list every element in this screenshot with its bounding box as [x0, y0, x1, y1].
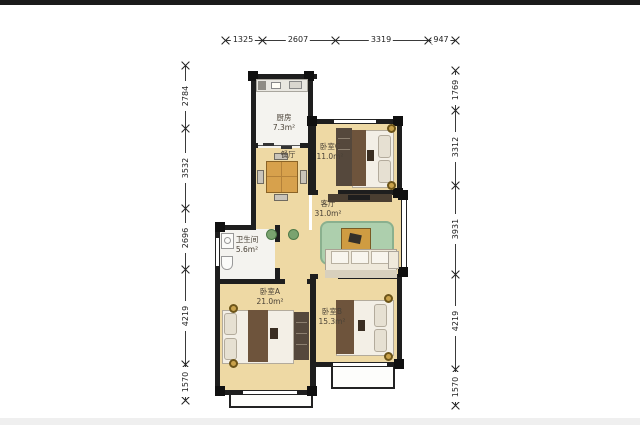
wall-segment [251, 74, 256, 230]
dimension-label: 3532 [181, 153, 191, 183]
stove-icon [289, 81, 302, 89]
dimension-tick [180, 264, 191, 275]
column [215, 386, 225, 396]
dimension-tick [180, 60, 191, 71]
bed-blanket [248, 310, 268, 362]
dimension-label: 947 [431, 35, 450, 44]
dimension-label: 2696 [181, 223, 191, 253]
dining-table-line [267, 176, 297, 177]
bedside-lamp-icon [384, 294, 393, 303]
dimension-tick [257, 35, 268, 46]
bed-accessory [358, 320, 365, 331]
sofa-backrest [325, 270, 397, 278]
dining-table [266, 161, 298, 193]
room-area: 5.6m² [224, 245, 270, 255]
room-name: 卧室B [309, 307, 355, 317]
wall-segment [397, 119, 402, 195]
room-name: 卫生间 [224, 235, 270, 245]
bay-window-bedroom-a [229, 393, 313, 408]
wardrobe [294, 312, 309, 360]
dimension-label: 1769 [451, 75, 461, 105]
dimension-label: 2784 [181, 81, 191, 111]
pillow [378, 160, 391, 183]
window-living-room [401, 199, 407, 269]
column [215, 222, 225, 232]
dimension-label: 1570 [451, 372, 461, 402]
dimension-tick [450, 180, 461, 191]
bed-blanket [352, 130, 366, 186]
room-label-bedroom-a: 卧室A 21.0m² [247, 287, 293, 307]
door-opening-bedroom-a [285, 279, 307, 284]
pillow [374, 329, 387, 352]
bed-accessory [367, 150, 374, 161]
letterbox-bottom-bar [0, 418, 640, 425]
dimension-tick [180, 203, 191, 214]
window-bedroom-b [333, 362, 387, 367]
dimension-label: 1570 [181, 367, 191, 397]
dimension-label: 3931 [451, 214, 461, 244]
window-bedroom-a [243, 390, 297, 395]
dimension-label: 3319 [369, 35, 393, 44]
room-area: 15.3m² [309, 317, 355, 327]
chair [274, 194, 288, 201]
dimension-tick [180, 123, 191, 134]
room-area: 11.0m² [307, 152, 353, 162]
fridge-icon [258, 81, 266, 90]
window-bedroom-c [334, 119, 376, 124]
dimension-tick [330, 35, 341, 46]
tv-icon [348, 195, 370, 200]
door-opening-bathroom [275, 242, 280, 268]
sofa-cushion [331, 251, 349, 264]
bay-window-bedroom-b [331, 365, 395, 389]
room-name: 厨房 [261, 113, 307, 123]
room-label-bedroom-b: 卧室B 15.3m² [309, 307, 355, 327]
bedside-lamp-icon [384, 352, 393, 361]
room-label-living: 客厅 31.0m² [305, 199, 351, 219]
room-name: 卧室A [247, 287, 293, 297]
room-label-bedroom-c: 卧室C 11.0m² [307, 142, 353, 162]
floorplan-image: 1325 2607 3319 947 2784 3532 2696 4219 1… [0, 0, 640, 425]
room-name: 餐厅 [265, 150, 311, 160]
column [307, 386, 317, 396]
dimension-label: 2607 [286, 35, 310, 44]
dimension-tick [220, 35, 231, 46]
dimension-label: 3312 [451, 132, 461, 162]
dimension-tick [450, 35, 461, 46]
dimension-label: 4219 [451, 306, 461, 336]
pillow [224, 313, 237, 335]
chair [300, 170, 307, 184]
sofa-cushion [371, 251, 389, 264]
room-name: 卧室C [307, 142, 353, 152]
letterbox-top-bar [0, 0, 640, 5]
room-area: 7.3m² [261, 123, 307, 133]
room-name: 客厅 [305, 199, 351, 209]
room-label-kitchen: 厨房 7.3m² [261, 113, 307, 133]
dimension-label: 1325 [231, 35, 255, 44]
pillow [374, 304, 387, 327]
column [398, 267, 408, 277]
column [398, 190, 408, 200]
side-table [388, 251, 399, 269]
sliding-door-panel [263, 143, 274, 146]
bedside-lamp-icon [387, 181, 396, 190]
bedside-lamp-icon [387, 124, 396, 133]
pillow [224, 338, 237, 360]
wall-segment [397, 276, 402, 367]
bed-accessory [270, 328, 278, 339]
bedside-lamp-icon [229, 359, 238, 368]
dimension-tick [450, 105, 461, 116]
room-area: 21.0m² [247, 297, 293, 307]
sliding-door-panel [281, 146, 292, 149]
toilet-icon [221, 256, 233, 270]
dining-table-line [281, 162, 282, 192]
plant-icon [288, 229, 299, 240]
room-label-bathroom: 卫生间 5.6m² [224, 235, 270, 255]
column [307, 116, 317, 126]
room-area: 31.0m² [305, 209, 351, 219]
column [394, 359, 404, 369]
wall-segment [310, 276, 316, 395]
chair [257, 170, 264, 184]
dimension-label: 4219 [181, 301, 191, 331]
sofa-cushion [351, 251, 369, 264]
dimension-tick [450, 269, 461, 280]
sink-icon [271, 82, 281, 89]
window-bathroom [215, 238, 220, 266]
room-label-dining: 餐厅 [265, 150, 311, 160]
pillow [378, 135, 391, 158]
bedside-lamp-icon [229, 304, 238, 313]
